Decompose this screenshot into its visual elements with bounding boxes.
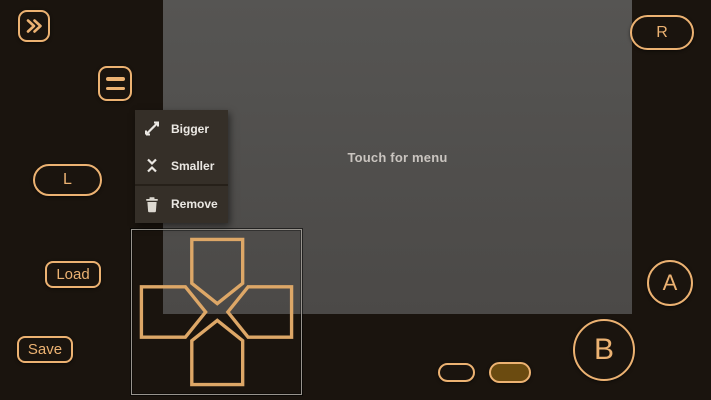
dpad bbox=[132, 230, 301, 394]
select-button[interactable] bbox=[438, 363, 475, 382]
hamburger-icon bbox=[106, 87, 125, 91]
save-state-button[interactable]: Save bbox=[17, 336, 73, 363]
dpad-down-button[interactable] bbox=[192, 320, 243, 384]
expand-icon bbox=[144, 120, 160, 137]
collapse-icon bbox=[144, 157, 160, 174]
load-state-button[interactable]: Load bbox=[45, 261, 101, 288]
emulator-overlay: Touch for menu Bigger Smaller bbox=[0, 0, 711, 400]
menu-item-label: Remove bbox=[171, 197, 218, 211]
menu-item-remove[interactable]: Remove bbox=[135, 186, 228, 223]
b-button[interactable]: B bbox=[573, 319, 635, 381]
menu-item-label: Smaller bbox=[171, 159, 214, 173]
dpad-up-button[interactable] bbox=[192, 239, 243, 303]
start-button[interactable] bbox=[489, 362, 531, 383]
a-button[interactable]: A bbox=[647, 260, 693, 306]
shoulder-l-button[interactable]: L bbox=[33, 164, 102, 196]
hamburger-icon bbox=[106, 77, 125, 81]
menu-item-label: Bigger bbox=[171, 122, 209, 136]
menu-item-bigger[interactable]: Bigger bbox=[135, 110, 228, 147]
menu-item-smaller[interactable]: Smaller bbox=[135, 147, 228, 184]
fast-forward-button[interactable] bbox=[18, 10, 50, 42]
screen-message: Touch for menu bbox=[347, 150, 447, 165]
dpad-edit-frame[interactable] bbox=[131, 229, 302, 395]
dpad-right-button[interactable] bbox=[228, 287, 292, 337]
context-menu: Bigger Smaller Remove bbox=[135, 110, 228, 223]
fast-forward-icon bbox=[24, 18, 44, 34]
shoulder-r-button[interactable]: R bbox=[630, 15, 694, 50]
dpad-left-button[interactable] bbox=[141, 287, 205, 337]
overlay-menu-button[interactable] bbox=[98, 66, 132, 101]
trash-icon bbox=[144, 196, 160, 213]
